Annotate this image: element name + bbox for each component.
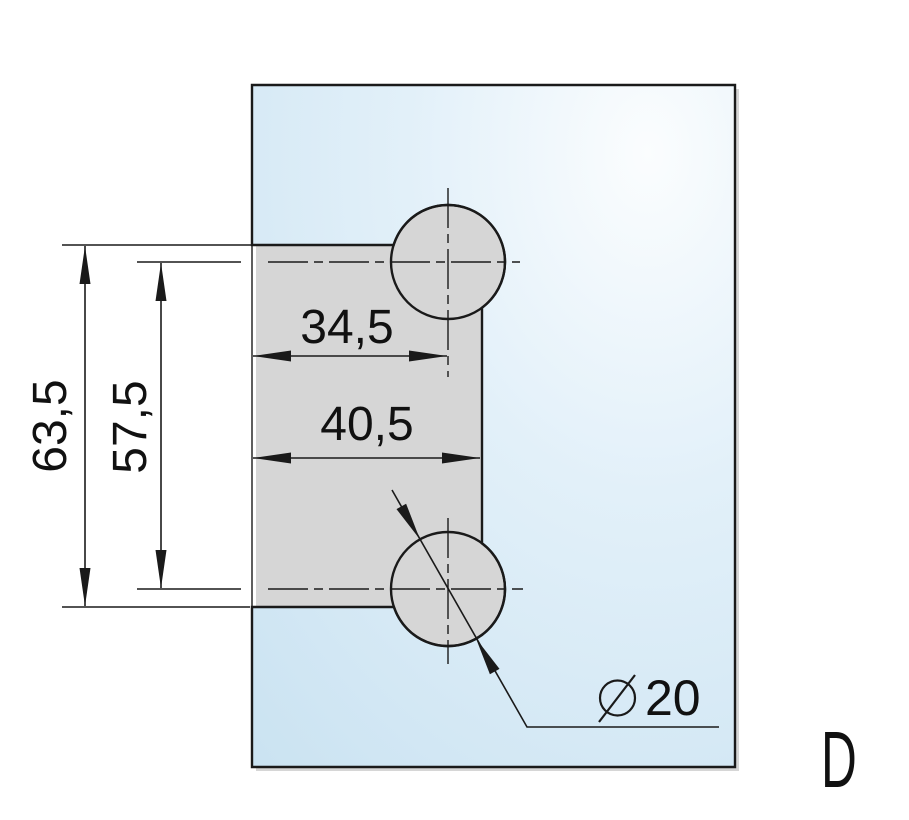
technical-drawing-canvas: 34,5 40,5 63,5 57,5 bbox=[0, 0, 909, 820]
arrowhead-bottom-63-5 bbox=[80, 568, 91, 606]
variant-letter-group: D bbox=[821, 716, 857, 805]
hinge-cutout-diagram: 34,5 40,5 63,5 57,5 bbox=[0, 0, 909, 820]
dimension-label-63-5: 63,5 bbox=[24, 379, 77, 472]
variant-letter-label: D bbox=[821, 716, 857, 805]
arrowhead-bottom-57-5 bbox=[156, 550, 167, 588]
arrowhead-top-57-5 bbox=[156, 263, 167, 301]
dimension-label-40-5: 40,5 bbox=[320, 398, 413, 451]
dimension-57-5: 57,5 bbox=[104, 263, 167, 588]
dimension-label-34-5: 34,5 bbox=[300, 301, 393, 354]
arrowhead-top-63-5 bbox=[80, 246, 91, 284]
dimension-63-5: 63,5 bbox=[24, 246, 91, 606]
dimension-label-57-5: 57,5 bbox=[104, 380, 157, 473]
diameter-value-label: 20 bbox=[645, 670, 701, 726]
